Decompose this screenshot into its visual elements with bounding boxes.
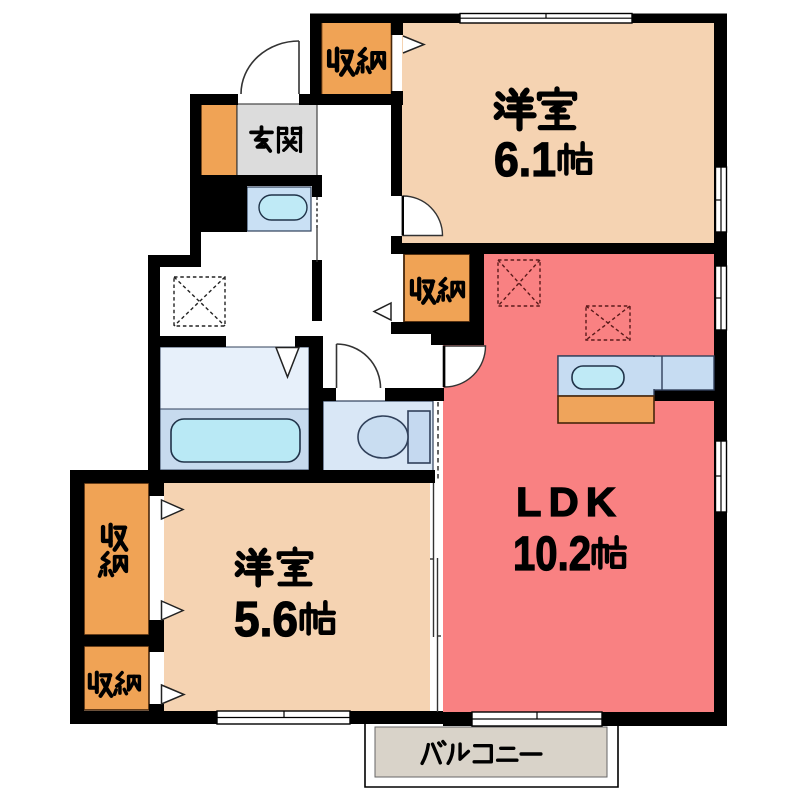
- svg-text:6.1: 6.1: [494, 134, 556, 187]
- svg-text:5.6: 5.6: [234, 593, 298, 647]
- svg-text:10.2: 10.2: [513, 528, 591, 581]
- svg-text:LDK: LDK: [516, 479, 623, 525]
